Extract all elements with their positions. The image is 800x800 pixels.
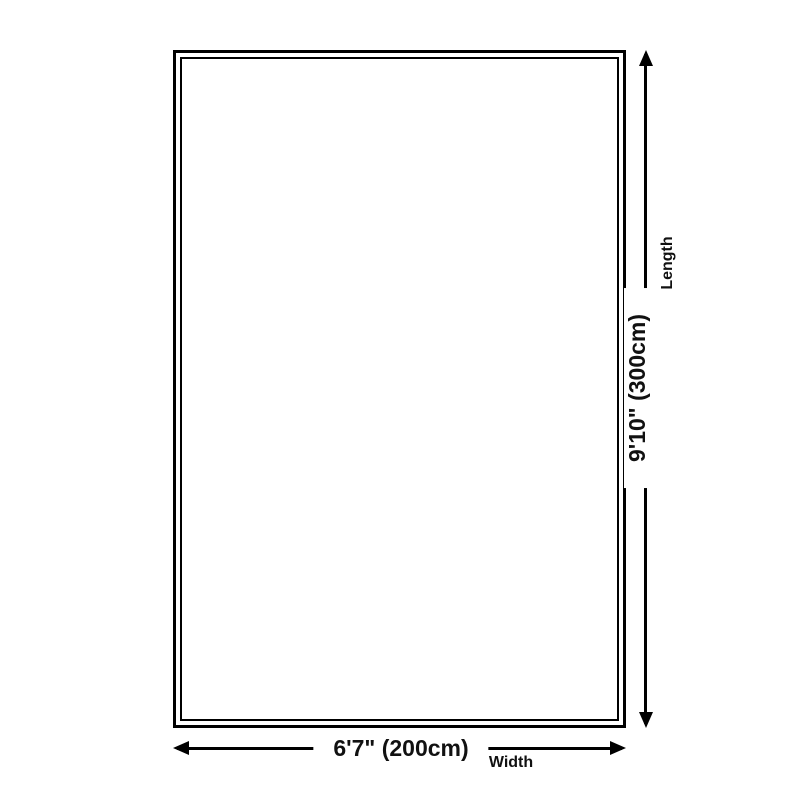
arrow-up-icon <box>639 50 653 66</box>
length-value: 9'10" (300cm) <box>624 288 650 488</box>
product-outline-inner-border <box>180 57 619 721</box>
length-label: Length <box>659 236 677 289</box>
arrow-down-icon <box>639 712 653 728</box>
arrow-left-icon <box>173 741 189 755</box>
width-label: Width <box>489 754 533 772</box>
dimension-diagram: 9'10" (300cm) Length 6'7" (200cm) Width <box>0 0 800 800</box>
width-value: 6'7" (200cm) <box>313 735 488 761</box>
arrow-right-icon <box>610 741 626 755</box>
product-outline-rectangle <box>173 50 626 728</box>
